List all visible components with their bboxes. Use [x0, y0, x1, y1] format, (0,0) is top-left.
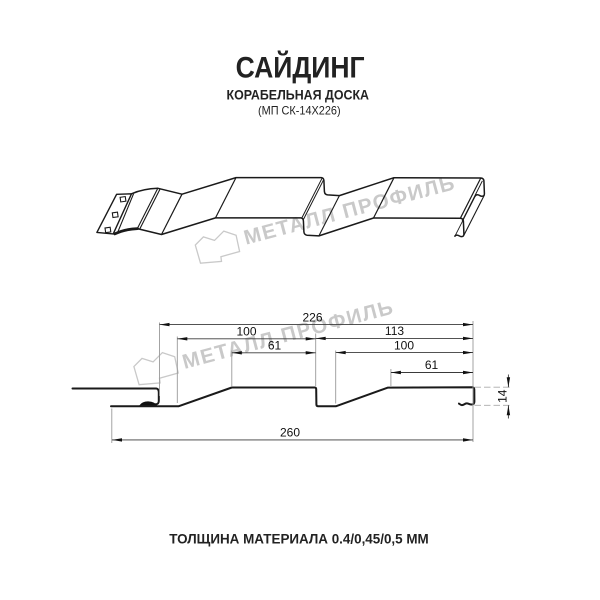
svg-text:МЕТАЛЛ ПРОФИЛЬ: МЕТАЛЛ ПРОФИЛЬ: [241, 171, 458, 249]
svg-text:61: 61: [425, 358, 439, 372]
svg-text:(МП СК-14Х226): (МП СК-14Х226): [258, 103, 341, 117]
svg-text:226: 226: [302, 310, 322, 324]
svg-text:КОРАБЕЛЬНАЯ ДОСКА: КОРАБЕЛЬНАЯ ДОСКА: [227, 87, 370, 102]
svg-text:61: 61: [268, 339, 282, 353]
svg-text:САЙДИНГ: САЙДИНГ: [236, 51, 365, 85]
svg-text:ТОЛЩИНА МАТЕРИАЛА 0.4/0,45/0,5: ТОЛЩИНА МАТЕРИАЛА 0.4/0,45/0,5 ММ: [169, 531, 428, 546]
svg-text:МЕТАЛЛ ПРОФИЛЬ: МЕТАЛЛ ПРОФИЛЬ: [180, 296, 397, 374]
svg-text:113: 113: [385, 324, 404, 338]
svg-text:14: 14: [496, 389, 510, 403]
svg-text:100: 100: [236, 325, 256, 339]
svg-text:100: 100: [394, 338, 414, 352]
svg-text:260: 260: [280, 425, 300, 439]
